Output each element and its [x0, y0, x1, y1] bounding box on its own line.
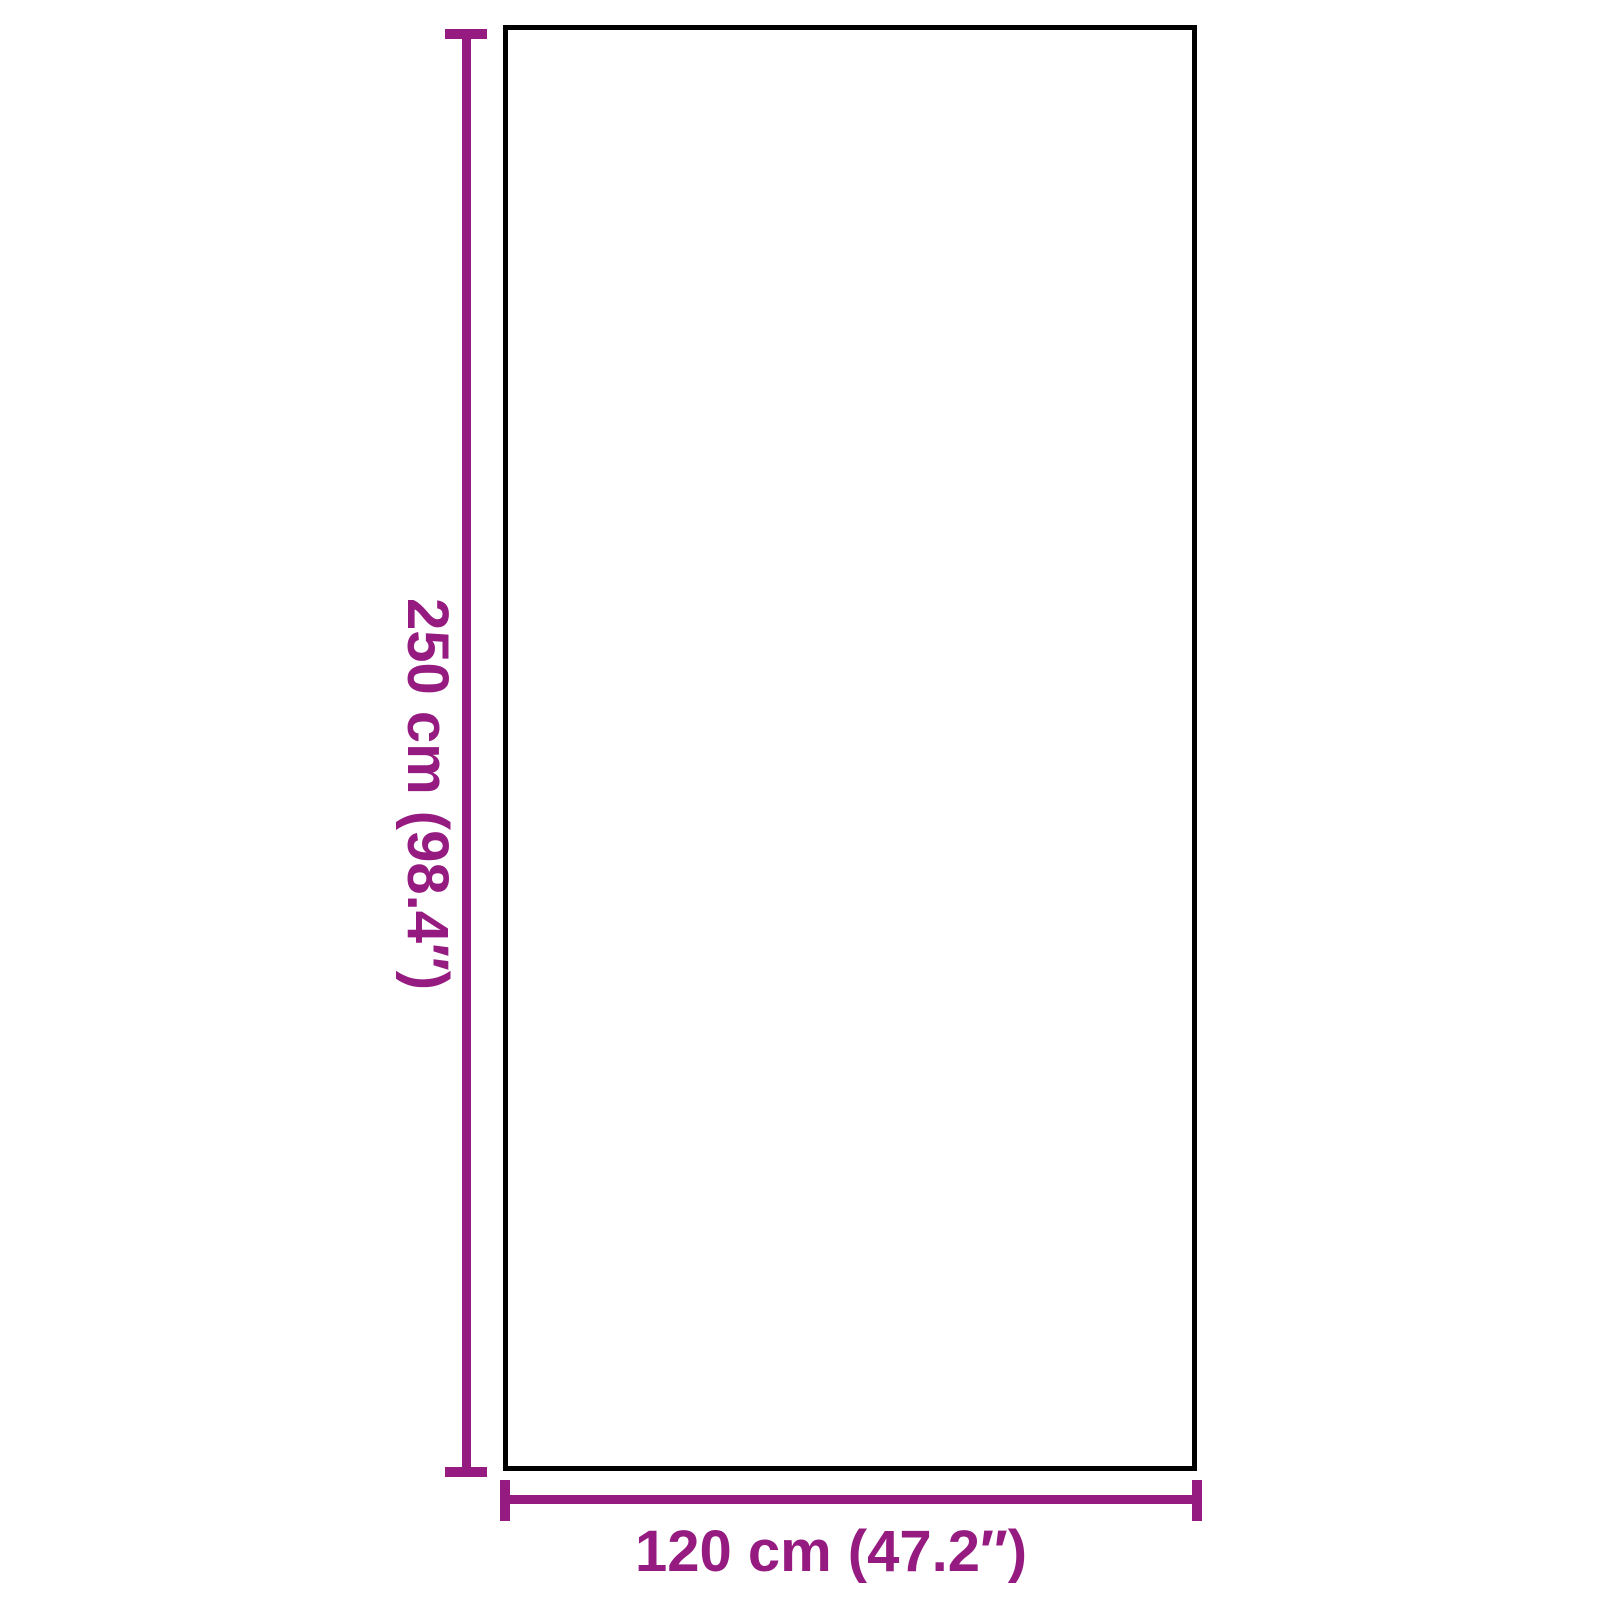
- width-dimension-cap-left: [500, 1480, 510, 1521]
- height-dimension-cap-bottom: [445, 1467, 487, 1477]
- width-dimension-label: 120 cm (47.2″): [635, 1523, 1027, 1581]
- width-dimension-cap-right: [1192, 1480, 1202, 1521]
- dimension-diagram: 250 cm (98.4″) 120 cm (47.2″): [0, 0, 1600, 1600]
- width-dimension-line: [503, 1495, 1200, 1504]
- height-dimension-label: 250 cm (98.4″): [398, 598, 456, 990]
- product-outline-rectangle: [503, 25, 1197, 1471]
- height-dimension-line: [462, 30, 471, 1477]
- height-dimension-cap-top: [445, 29, 487, 39]
